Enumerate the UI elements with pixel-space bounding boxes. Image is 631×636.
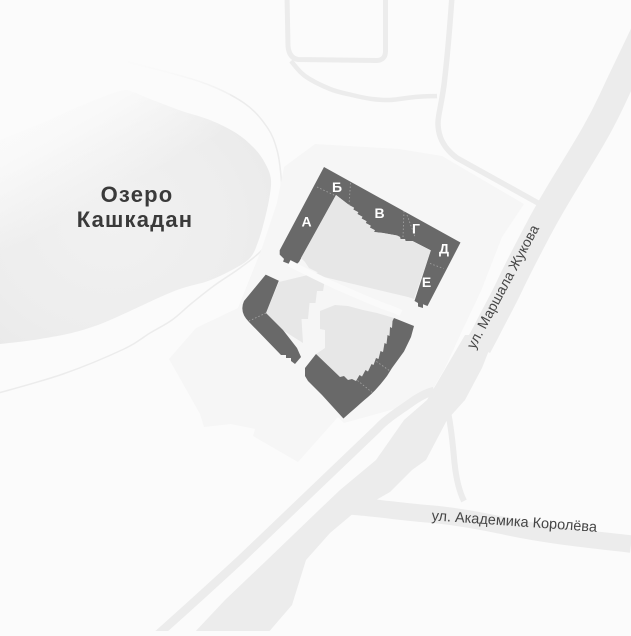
- svg-text:Д: Д: [439, 241, 449, 257]
- svg-text:Е: Е: [422, 274, 431, 290]
- svg-text:Озеро: Озеро: [101, 182, 174, 207]
- svg-text:Б: Б: [332, 179, 342, 195]
- svg-text:В: В: [374, 205, 384, 221]
- svg-text:Г: Г: [412, 221, 420, 237]
- svg-text:Кашкадан: Кашкадан: [77, 207, 194, 232]
- svg-text:А: А: [301, 214, 311, 230]
